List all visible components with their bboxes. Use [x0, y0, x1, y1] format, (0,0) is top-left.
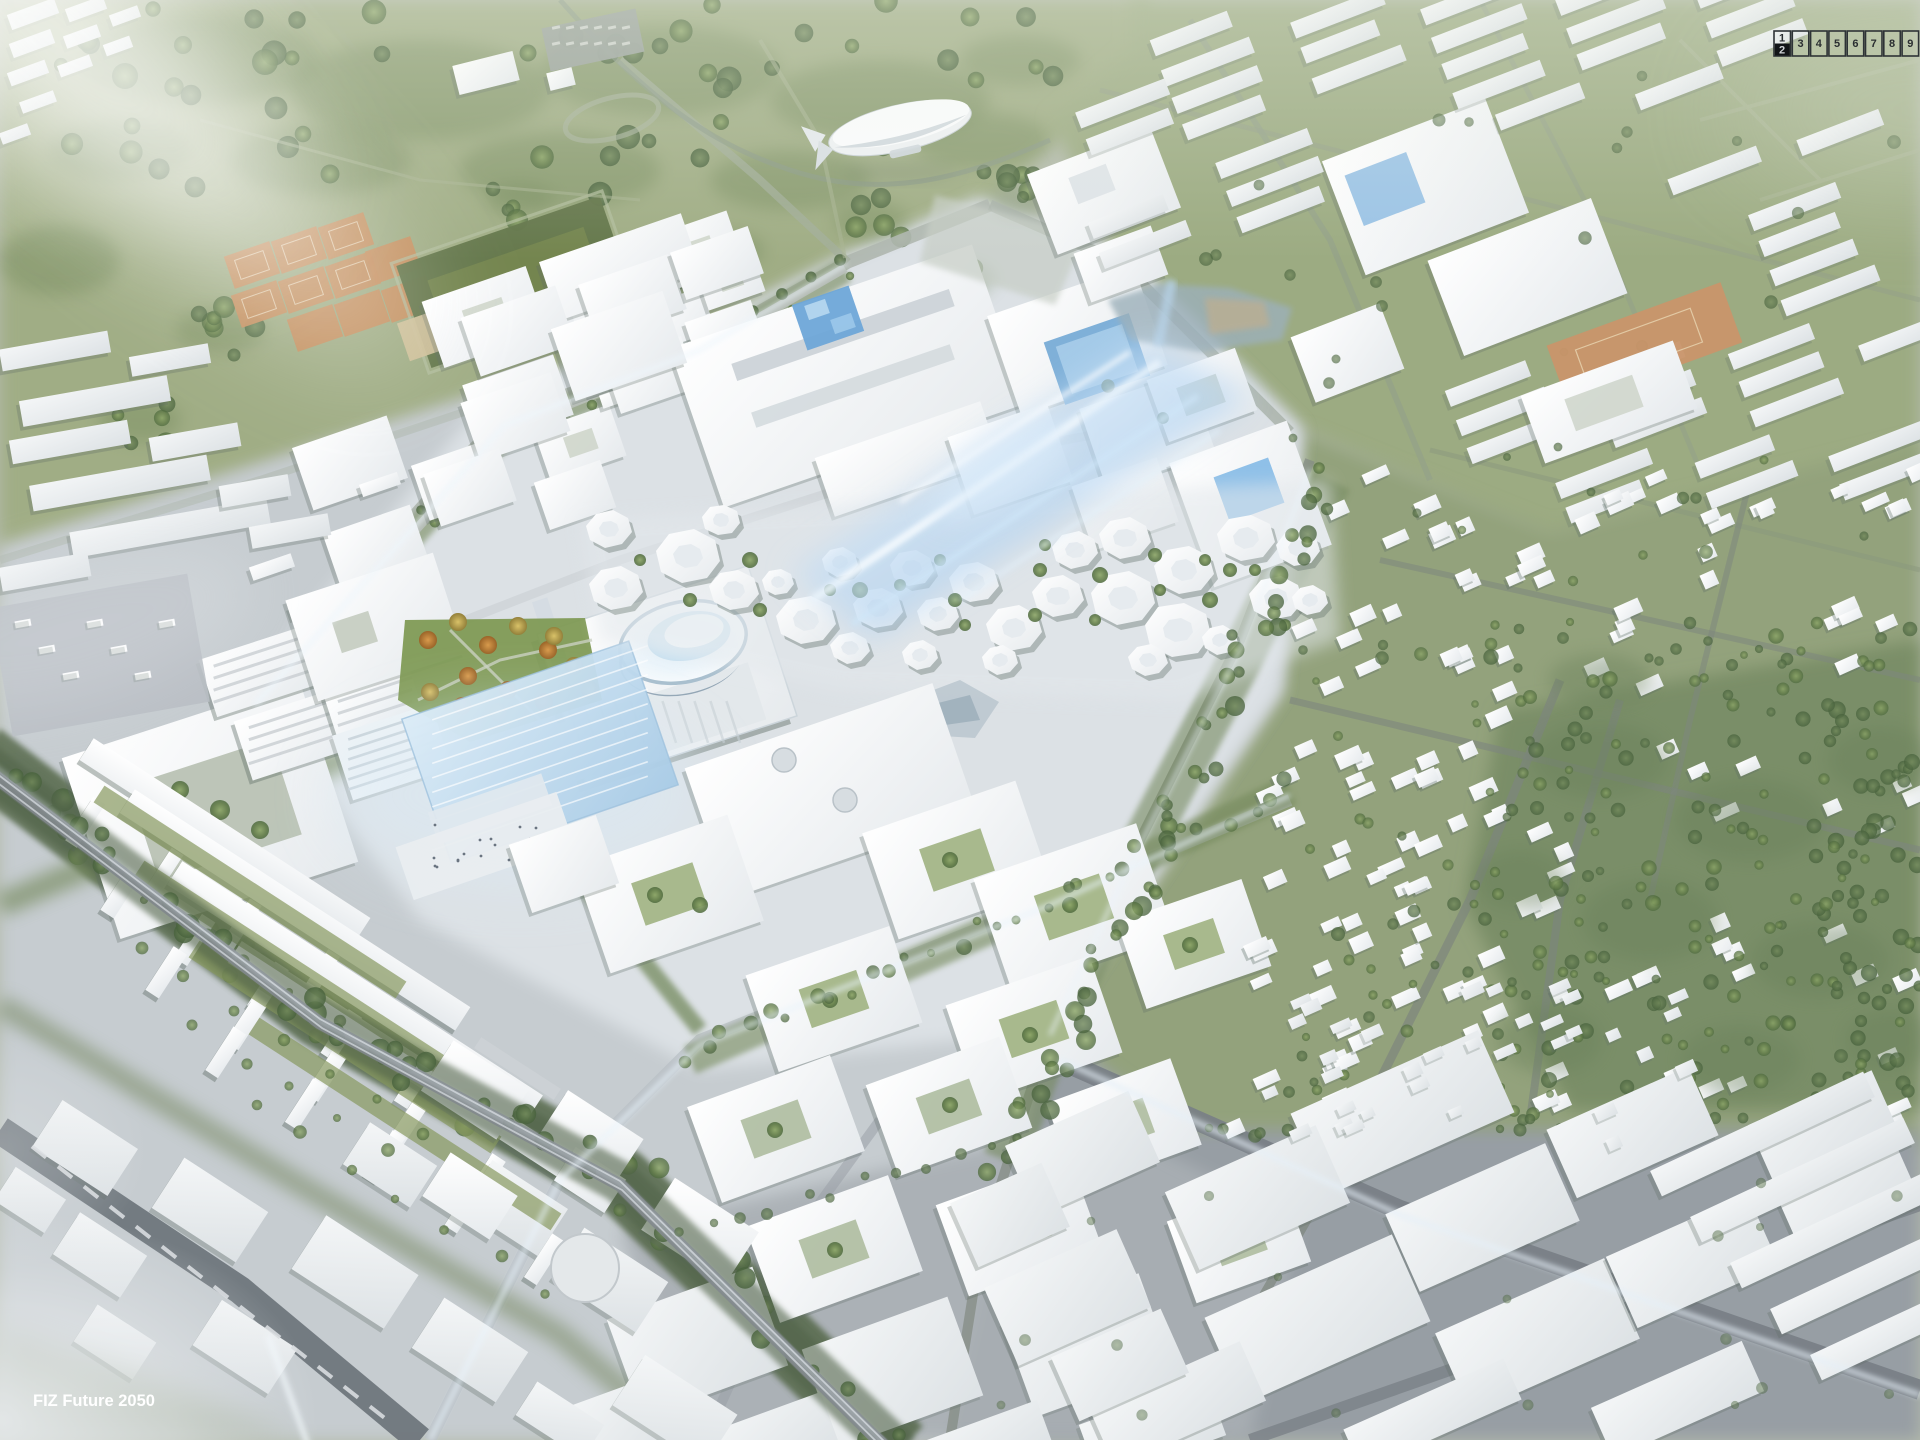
svg-text:4: 4	[1816, 38, 1823, 50]
svg-text:3: 3	[1797, 38, 1803, 50]
svg-text:FIZ Future 2050: FIZ Future 2050	[33, 1392, 155, 1410]
svg-text:5: 5	[1834, 38, 1840, 50]
svg-text:8: 8	[1889, 38, 1895, 50]
svg-text:7: 7	[1871, 38, 1877, 50]
svg-text:2: 2	[1779, 45, 1785, 57]
svg-text:9: 9	[1907, 38, 1913, 50]
svg-text:1: 1	[1779, 33, 1785, 45]
svg-text:6: 6	[1852, 38, 1858, 50]
